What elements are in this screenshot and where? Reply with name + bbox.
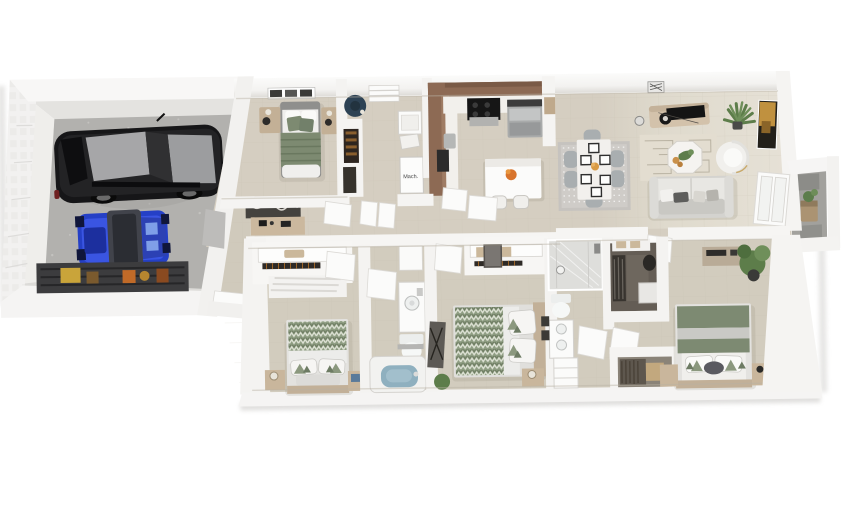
svg-text:Mach.: Mach.: [403, 174, 419, 180]
